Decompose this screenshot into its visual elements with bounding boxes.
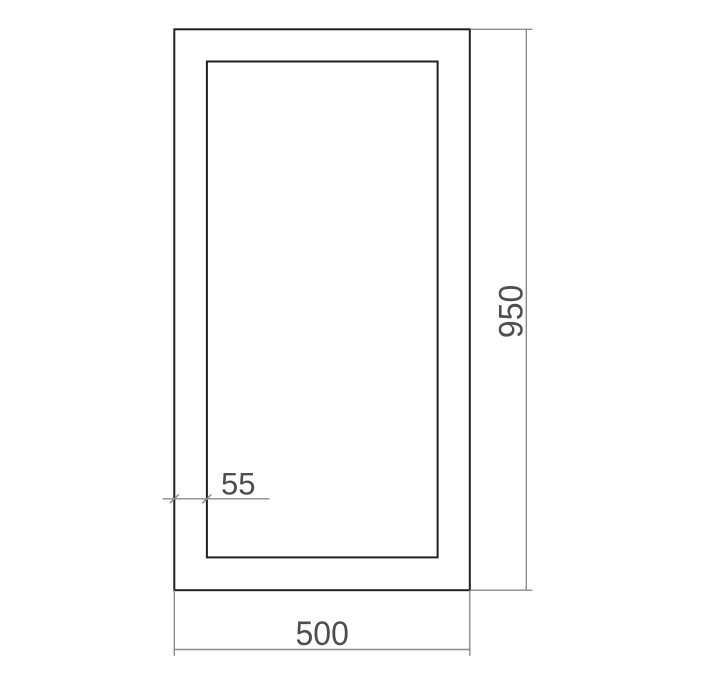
svg-text:950: 950 — [493, 285, 531, 338]
svg-text:55: 55 — [221, 466, 255, 501]
svg-text:500: 500 — [296, 615, 349, 653]
